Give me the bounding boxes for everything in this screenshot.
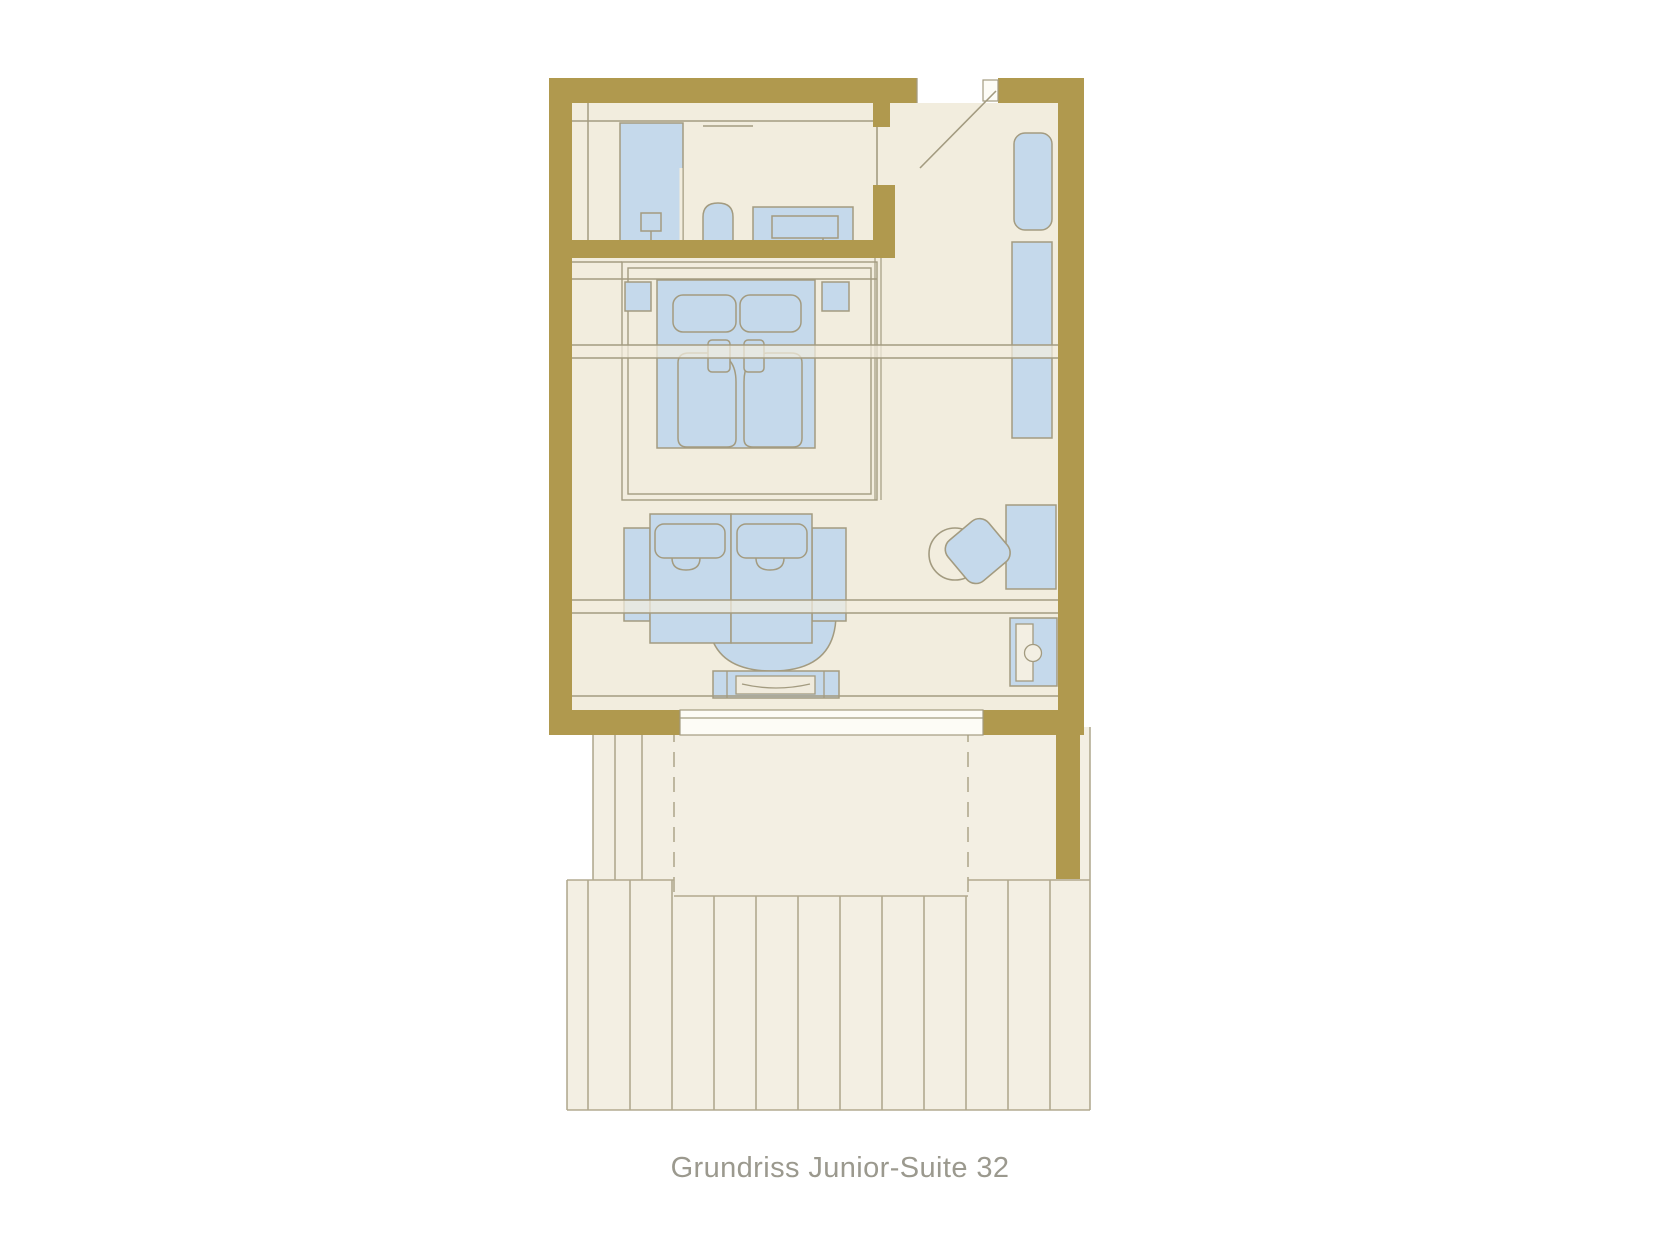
wall-bottom-left xyxy=(549,710,680,735)
nightstand-left xyxy=(625,282,651,311)
toilet xyxy=(703,203,733,243)
floor-plan xyxy=(0,0,1680,1244)
bathroom-wall xyxy=(873,185,895,240)
shower xyxy=(620,123,683,243)
sofa xyxy=(624,514,846,643)
desk xyxy=(1006,505,1056,589)
vanity-sink xyxy=(753,207,853,243)
deck-floor xyxy=(567,880,1090,1110)
terrace-wall-stub xyxy=(1056,727,1080,879)
entrance-hall-furniture xyxy=(1006,133,1056,589)
wardrobe xyxy=(1012,242,1052,438)
wall-left xyxy=(549,78,572,735)
luggage-bench xyxy=(1014,133,1052,230)
sofa-pillow-right xyxy=(737,524,807,558)
nightstand-right xyxy=(822,282,849,311)
window-front xyxy=(680,710,983,735)
tv-sideboard xyxy=(713,671,839,698)
screenshot-root: Grundriss Junior-Suite 32 xyxy=(0,0,1680,1244)
sofa-pillow-left xyxy=(655,524,725,558)
terrace-floor xyxy=(593,727,1090,880)
bathroom-wall-stub xyxy=(873,103,890,127)
wall-top xyxy=(549,78,917,103)
plan-caption: Grundriss Junior-Suite 32 xyxy=(0,1152,1680,1185)
wall-right xyxy=(1058,78,1084,735)
door-frame xyxy=(983,80,998,101)
minibar xyxy=(1010,618,1057,686)
bathroom-wall-bottom xyxy=(572,240,895,258)
